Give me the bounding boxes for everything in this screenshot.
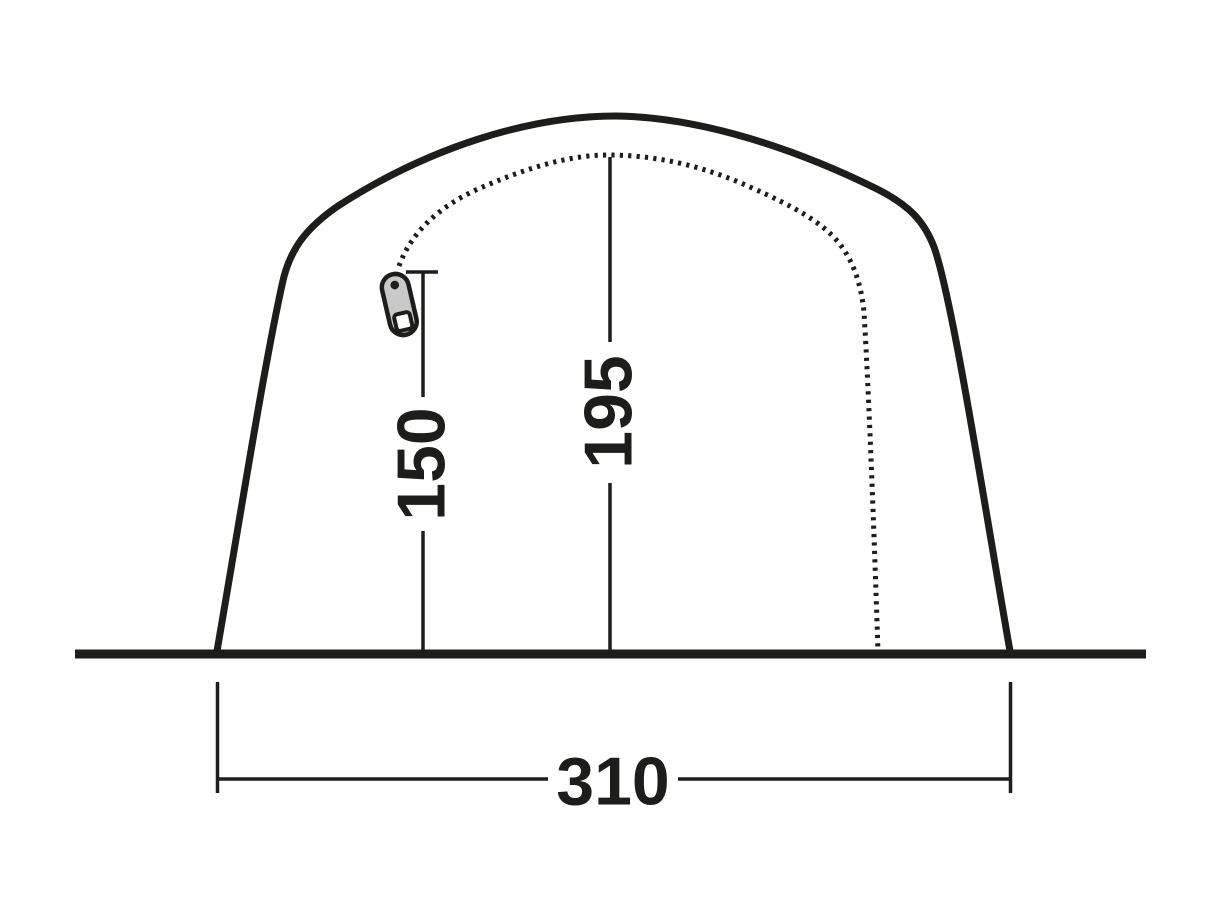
diagram-canvas: 150 195 310	[0, 0, 1230, 904]
dim-peak-height-label: 195	[570, 355, 646, 468]
zipper-pull-hole	[394, 311, 413, 331]
tent-dimension-diagram: 150 195 310	[0, 0, 1230, 904]
dim-base-width-label: 310	[556, 743, 669, 819]
zipper-pull-icon	[379, 271, 419, 337]
dim-door-height-label: 150	[383, 407, 459, 520]
